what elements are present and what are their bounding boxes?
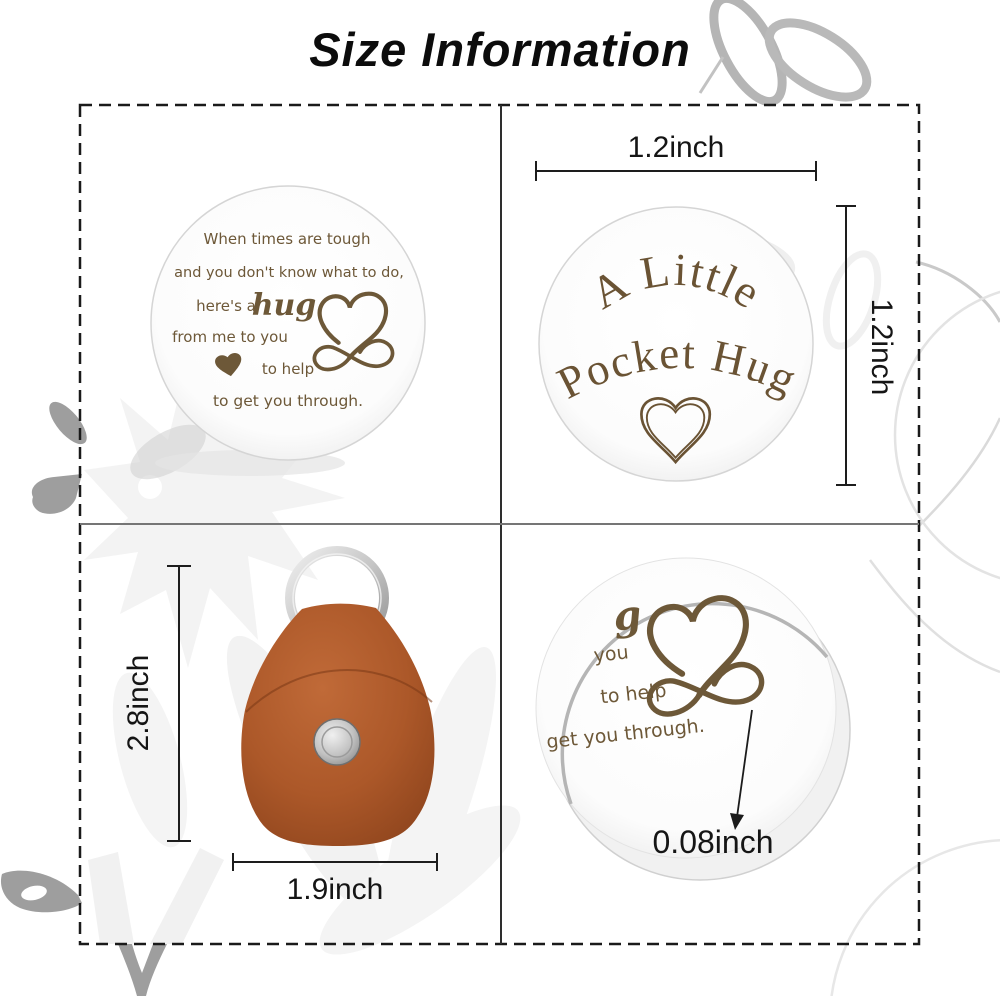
thickness-label: 0.08inch bbox=[653, 824, 774, 860]
snap-button bbox=[314, 719, 360, 765]
back-disc-view: A Little Pocket Hug 1.2inch 1.2inch bbox=[536, 131, 898, 485]
thickness-script-fragment: g bbox=[611, 591, 644, 641]
disc-height-label: 1.2inch bbox=[865, 299, 898, 396]
disc-width-label: 1.2inch bbox=[628, 131, 725, 164]
front-disc-line1: When times are tough bbox=[204, 230, 371, 248]
front-disc-line3-script: hug bbox=[252, 288, 317, 323]
stem-light bbox=[88, 852, 134, 944]
petal-outline-dark bbox=[700, 0, 796, 112]
circle-outline-right bbox=[830, 840, 1000, 996]
front-disc-line2: and you don't know what to do, bbox=[174, 265, 404, 281]
front-disc-line3-prefix: here's a bbox=[196, 297, 256, 315]
disc-width-dimension bbox=[536, 161, 816, 181]
stem-light bbox=[150, 848, 224, 944]
curve-right bbox=[918, 418, 1000, 527]
front-disc-line4: from me to you bbox=[172, 328, 288, 346]
stem-line bbox=[700, 57, 723, 93]
case-width-label: 1.9inch bbox=[287, 873, 384, 906]
petal-dark bbox=[43, 396, 93, 450]
circle-outline-right bbox=[895, 285, 1000, 585]
front-disc-line6: to get you through. bbox=[213, 392, 363, 410]
case-height-label: 2.8inch bbox=[122, 655, 155, 752]
thickness-view: g you to help get you through. 0.08inch bbox=[532, 558, 850, 880]
size-diagram-canvas: When times are tough and you don't know … bbox=[0, 0, 1000, 996]
curve-right bbox=[870, 560, 1000, 672]
thickness-line1: you bbox=[593, 641, 630, 667]
front-disc-line5: to help bbox=[262, 360, 314, 378]
size-information-infographic: Size Information bbox=[0, 0, 1000, 996]
stem-dark-v bbox=[118, 944, 167, 996]
leaf-dark bbox=[32, 474, 82, 514]
